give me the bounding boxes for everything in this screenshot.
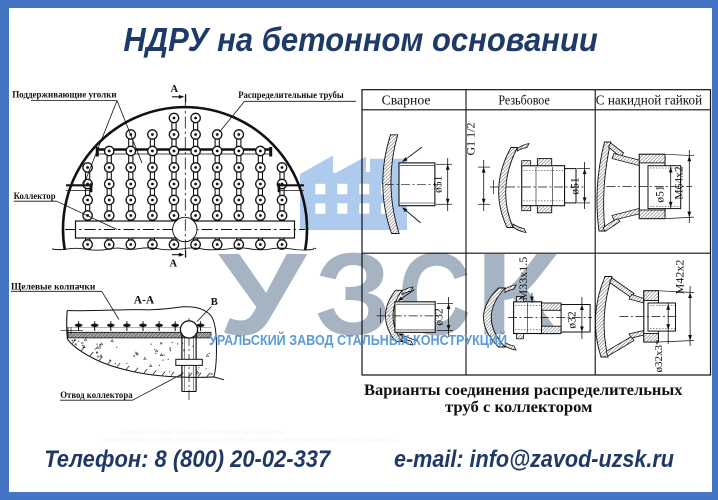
svg-text:Распределительные трубы: Распределительные трубы bbox=[238, 90, 344, 101]
svg-text:производство насосов дренажных: производство насосов дренажных устройств… bbox=[100, 436, 397, 444]
svg-text:С накидной гайкой: С накидной гайкой bbox=[596, 92, 702, 107]
svg-text:ø32х3*: ø32х3* bbox=[653, 340, 665, 373]
svg-text:УРАЛЬСКИЙ ЗАВОД СТАЛЬНЫХ КОНСТ: УРАЛЬСКИЙ ЗАВОД СТАЛЬНЫХ КОНСТРУКЦИЙ bbox=[209, 331, 507, 349]
svg-text:ø32: ø32 bbox=[434, 308, 446, 326]
svg-text:Щелевые колпачки: Щелевые колпачки bbox=[11, 282, 96, 292]
svg-text:Сварное: Сварное bbox=[382, 92, 431, 107]
svg-text:M33x1.5: M33x1.5 bbox=[516, 257, 530, 301]
svg-text:труб с коллектором: труб с коллектором bbox=[445, 399, 593, 416]
svg-text:Резьбовое: Резьбовое bbox=[498, 92, 549, 107]
svg-text:В: В bbox=[211, 297, 218, 308]
svg-text:Отвод коллектора: Отвод коллектора bbox=[60, 391, 133, 401]
svg-text:e-mail: info@zavod-uzsk.ru: e-mail: info@zavod-uzsk.ru bbox=[394, 446, 674, 473]
svg-text:ø51: ø51 bbox=[655, 185, 667, 203]
svg-text:А-А: А-А bbox=[134, 295, 155, 307]
svg-text:ø32: ø32 bbox=[567, 311, 579, 329]
svg-text:А: А bbox=[170, 259, 178, 270]
svg-text:уральский завод стальных конст: уральский завод стальных конструкций узс… bbox=[120, 428, 284, 436]
svg-text:M42x2: M42x2 bbox=[673, 260, 687, 295]
svg-text:Коллектор: Коллектор bbox=[14, 192, 56, 202]
svg-text:G1 1/2: G1 1/2 bbox=[464, 123, 478, 156]
svg-text:Телефон: 8 (800) 20-02-337: Телефон: 8 (800) 20-02-337 bbox=[44, 446, 331, 473]
svg-text:ø51: ø51 bbox=[433, 175, 445, 193]
svg-text:А: А bbox=[171, 84, 179, 95]
svg-text:НДРУ на бетонном основании: НДРУ на бетонном основании bbox=[123, 22, 597, 59]
svg-text:M64x2: M64x2 bbox=[674, 166, 686, 199]
svg-text:ø51: ø51 bbox=[570, 177, 582, 195]
svg-text:Варианты соединения распредели: Варианты соединения распределительных bbox=[364, 382, 683, 399]
svg-text:Поддерживающие уголки: Поддерживающие уголки bbox=[12, 91, 117, 101]
